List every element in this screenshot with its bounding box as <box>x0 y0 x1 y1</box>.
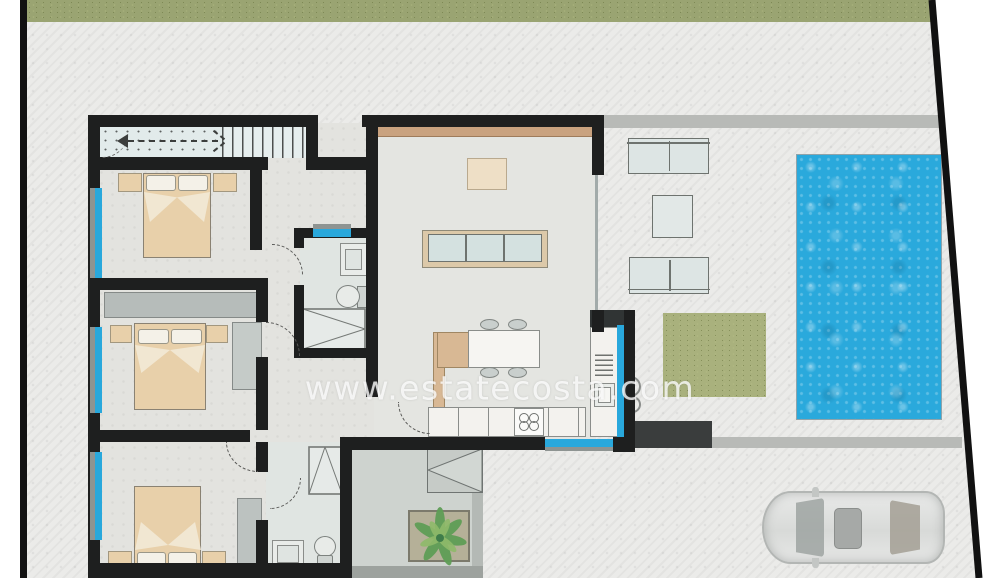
watermark-text: www.estatecosta.com <box>305 369 696 408</box>
floor-plan-image: www.estatecosta.com <box>0 0 1000 578</box>
plot-boundary-right <box>0 0 1000 578</box>
